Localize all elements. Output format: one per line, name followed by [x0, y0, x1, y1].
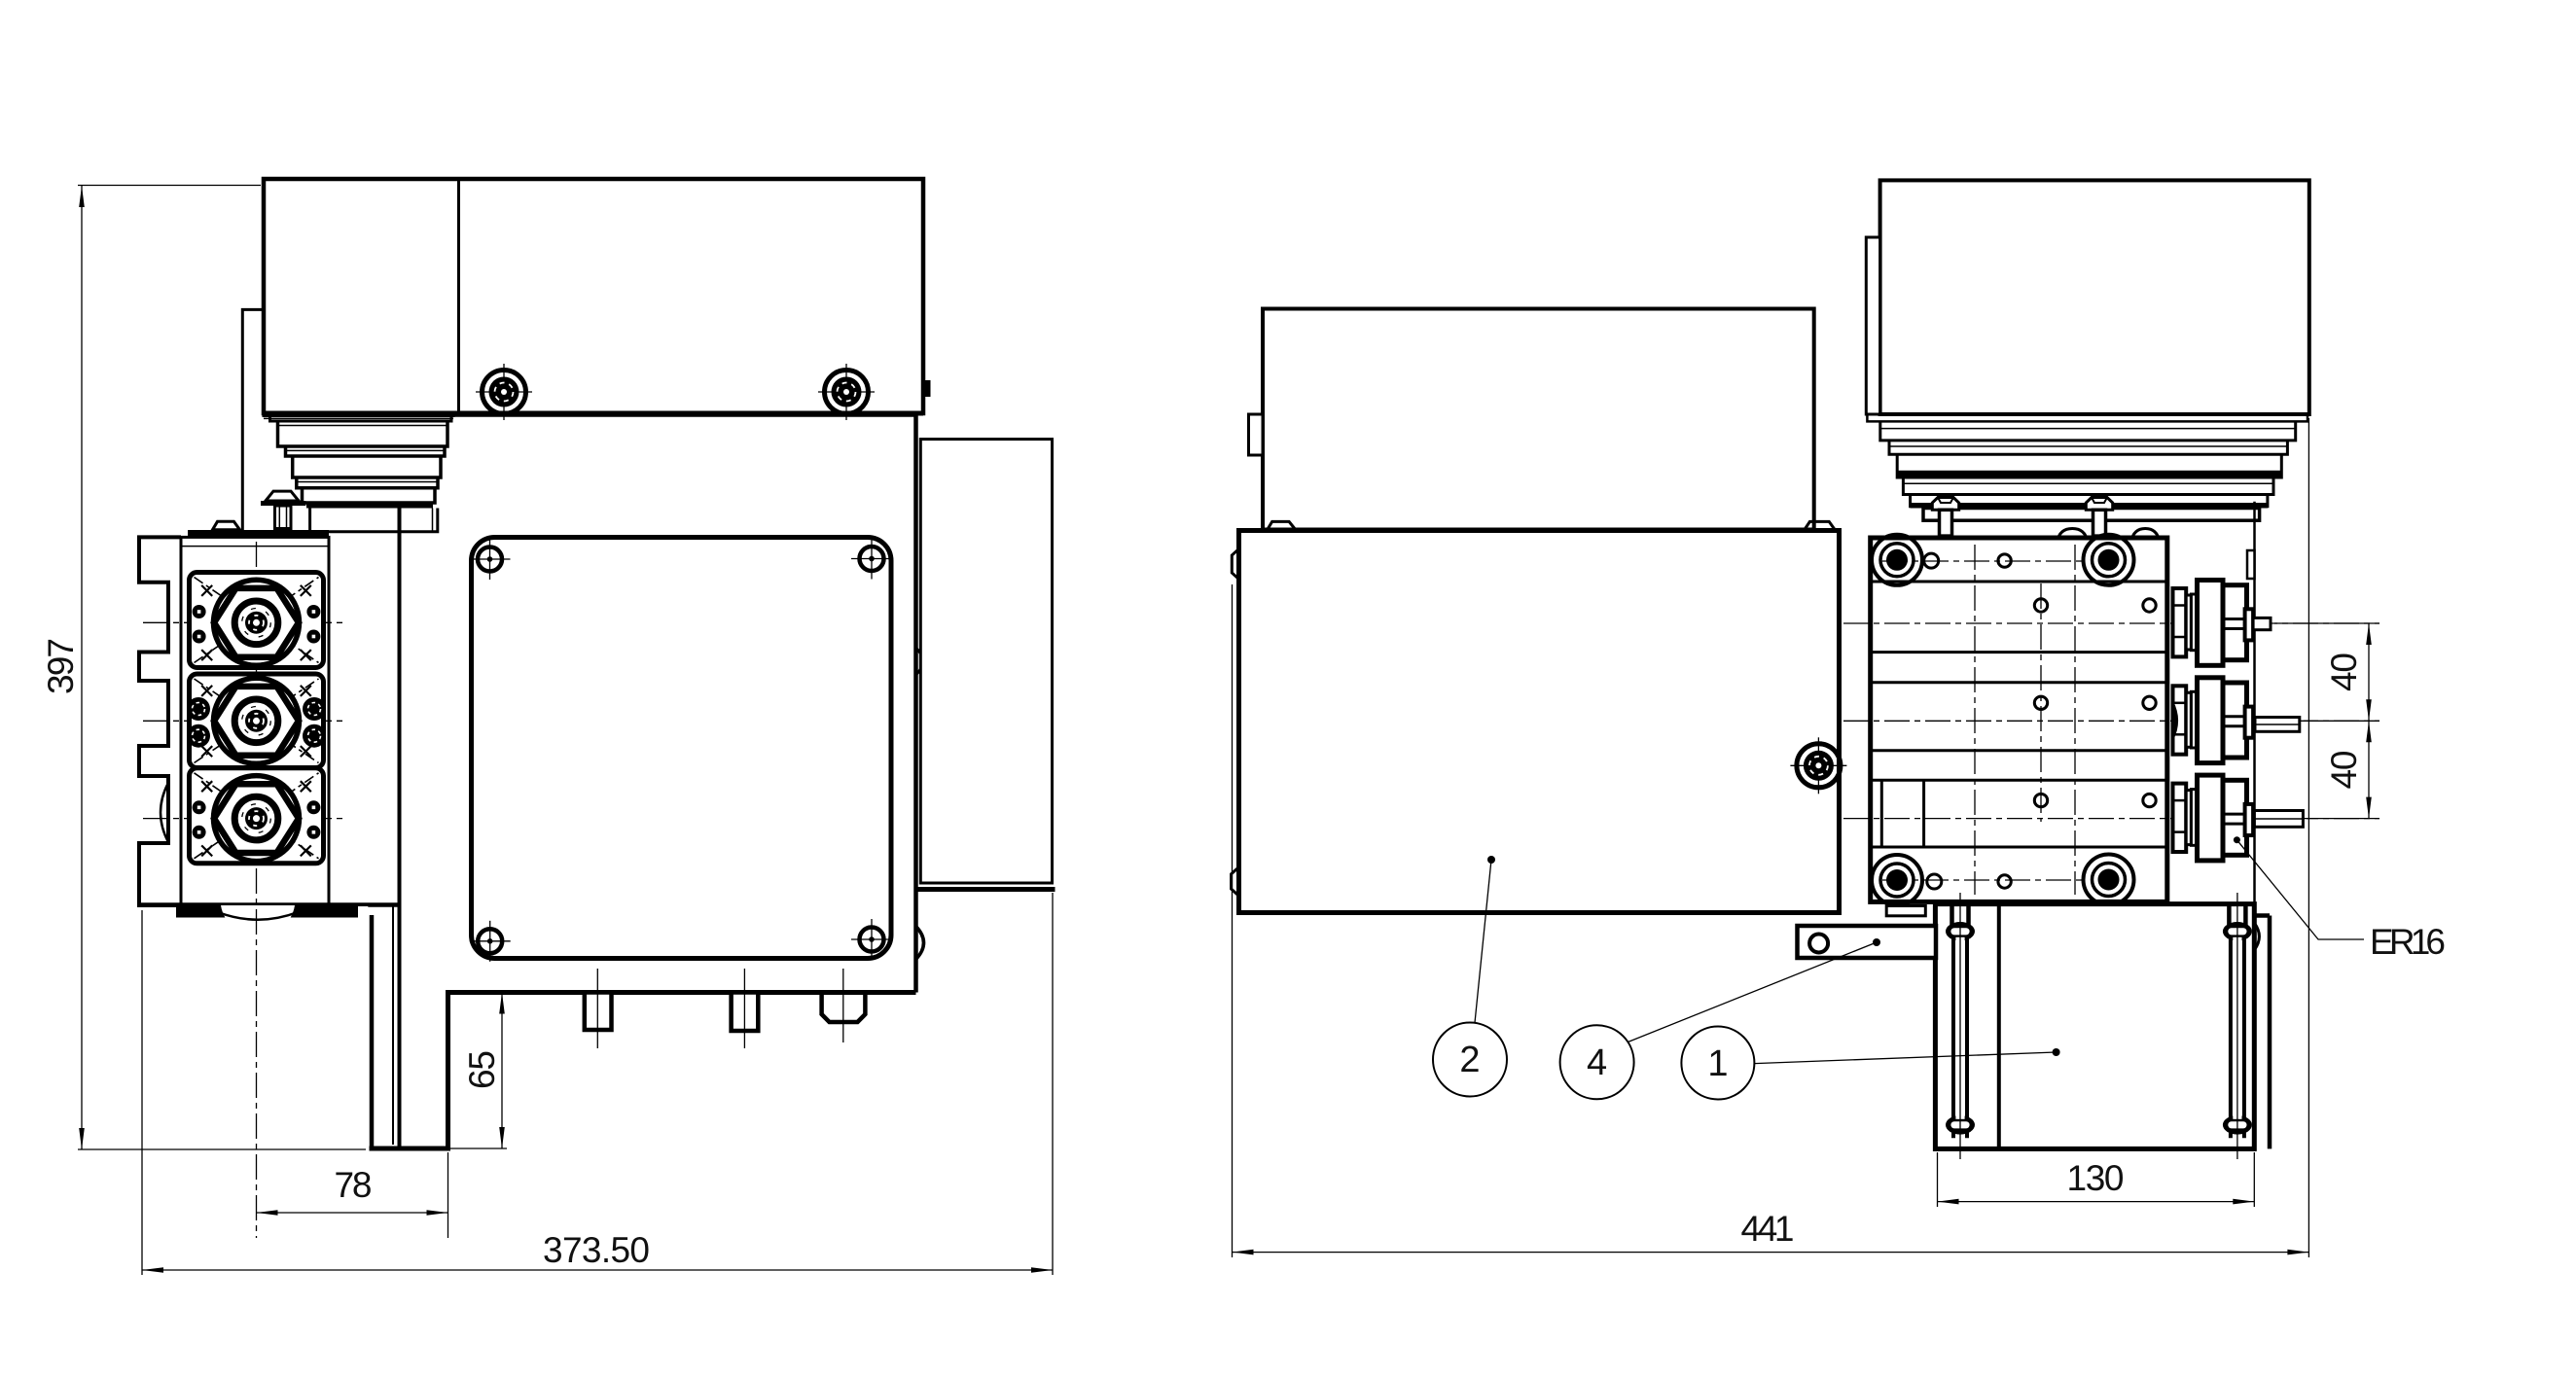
svg-text:4: 4	[1587, 1042, 1607, 1083]
svg-text:ER16: ER16	[2370, 922, 2446, 962]
svg-text:65: 65	[462, 1050, 502, 1089]
svg-text:40: 40	[2324, 751, 2364, 790]
svg-text:397: 397	[41, 638, 81, 694]
svg-text:78: 78	[335, 1165, 373, 1205]
svg-text:40: 40	[2324, 653, 2364, 691]
svg-text:441: 441	[1741, 1209, 1795, 1249]
svg-text:2: 2	[1459, 1040, 1480, 1080]
svg-text:130: 130	[2067, 1158, 2125, 1198]
svg-text:373.50: 373.50	[543, 1230, 650, 1270]
svg-text:1: 1	[1707, 1043, 1728, 1084]
